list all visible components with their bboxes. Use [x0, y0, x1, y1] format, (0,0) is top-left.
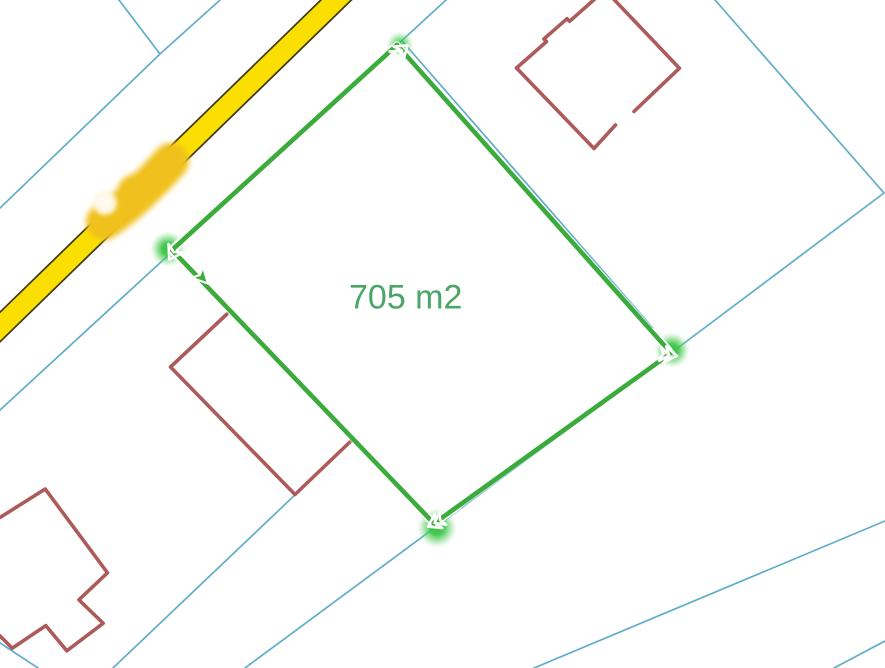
- svg-text:705 m2: 705 m2: [349, 279, 462, 317]
